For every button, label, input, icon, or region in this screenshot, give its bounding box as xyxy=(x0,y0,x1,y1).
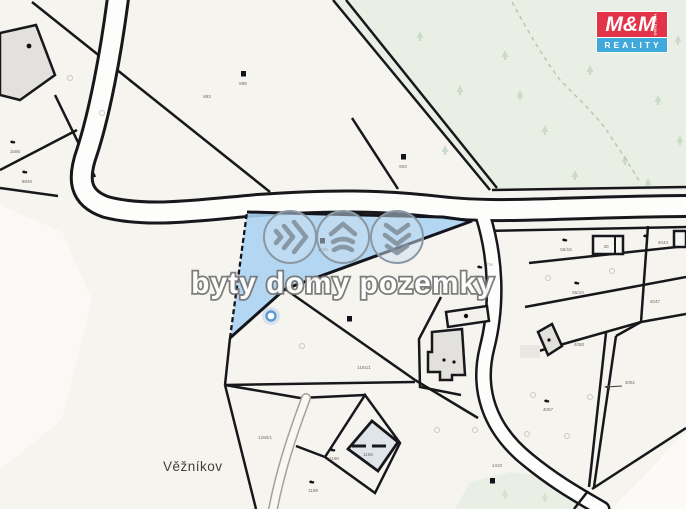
parcel-number-label: 4043 xyxy=(658,240,669,245)
parcel-number-label: 898 xyxy=(239,81,247,86)
mm-reality-logo: M&M HOLDING REALITY xyxy=(597,12,667,52)
cadastral-map[interactable]: 89889390315868940118655/855/1530404355/1… xyxy=(0,0,686,509)
parcel-number-label: 4051 xyxy=(625,380,636,385)
watermark-tm: ™ xyxy=(486,263,493,270)
parcel-number-label: 893 xyxy=(203,94,211,99)
location-marker xyxy=(262,307,280,325)
building-edge xyxy=(674,231,686,247)
parcel-number-label: 55/10 xyxy=(572,290,584,295)
parcel-number-label: 1191/1 xyxy=(357,365,371,370)
building-central-house xyxy=(428,329,465,380)
parcel-number-label: 1410 xyxy=(492,463,503,468)
logo-tagline: REALITY xyxy=(597,38,667,52)
parcel-number-label: 1586 xyxy=(10,149,21,154)
logo-holding-text: HOLDING xyxy=(644,14,667,36)
parcel-number-label: 1190 xyxy=(329,456,339,461)
parcel-number-label: 4050 xyxy=(574,342,585,347)
parcel-number-label: 903 xyxy=(399,164,407,169)
parcel-number-label: 30 xyxy=(603,244,609,249)
village-label: Věžníkov xyxy=(163,459,223,474)
parcel-number-label: 4047 xyxy=(650,299,661,304)
logo-name: M&M HOLDING xyxy=(597,12,667,37)
watermark-text: byty domy pozemky xyxy=(191,267,495,300)
parcel-number-label: 1260/1 xyxy=(258,435,272,440)
parcel-number-label: 55/15 xyxy=(560,247,572,252)
parcel-number-label: 8940 xyxy=(22,179,33,184)
building-shadow xyxy=(520,345,540,358)
map-canvas[interactable]: 89889390315868940118655/855/1530404355/1… xyxy=(0,0,686,509)
parcel-number-label: 1185 xyxy=(363,452,373,457)
parcel-number-label: 4057 xyxy=(543,407,554,412)
parcel-number-label: 1189 xyxy=(308,488,318,493)
